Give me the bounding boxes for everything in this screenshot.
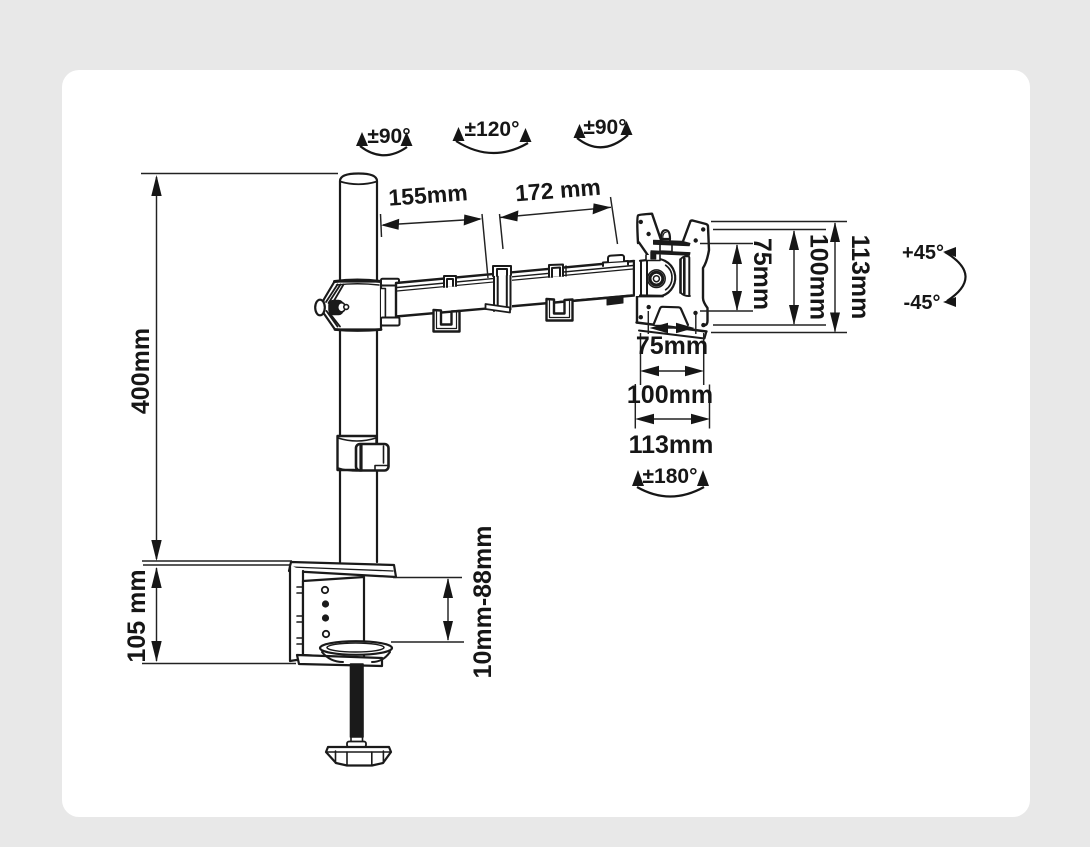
svg-text:75mm: 75mm — [748, 238, 776, 310]
svg-text:113mm: 113mm — [629, 431, 714, 459]
svg-text:±180°: ±180° — [643, 465, 698, 488]
svg-text:+45°: +45° — [902, 242, 944, 264]
svg-text:±120°: ±120° — [465, 118, 520, 141]
svg-text:105 mm: 105 mm — [123, 569, 151, 662]
svg-text:10mm-88mm: 10mm-88mm — [469, 526, 497, 679]
svg-text:155mm: 155mm — [388, 179, 469, 210]
svg-text:400mm: 400mm — [127, 328, 155, 414]
svg-text:100mm: 100mm — [805, 234, 833, 320]
svg-text:75mm: 75mm — [636, 332, 708, 360]
svg-text:100mm: 100mm — [627, 381, 713, 409]
svg-text:±90°: ±90° — [583, 116, 626, 139]
svg-text:-45°: -45° — [904, 292, 941, 314]
svg-text:113mm: 113mm — [846, 235, 874, 320]
